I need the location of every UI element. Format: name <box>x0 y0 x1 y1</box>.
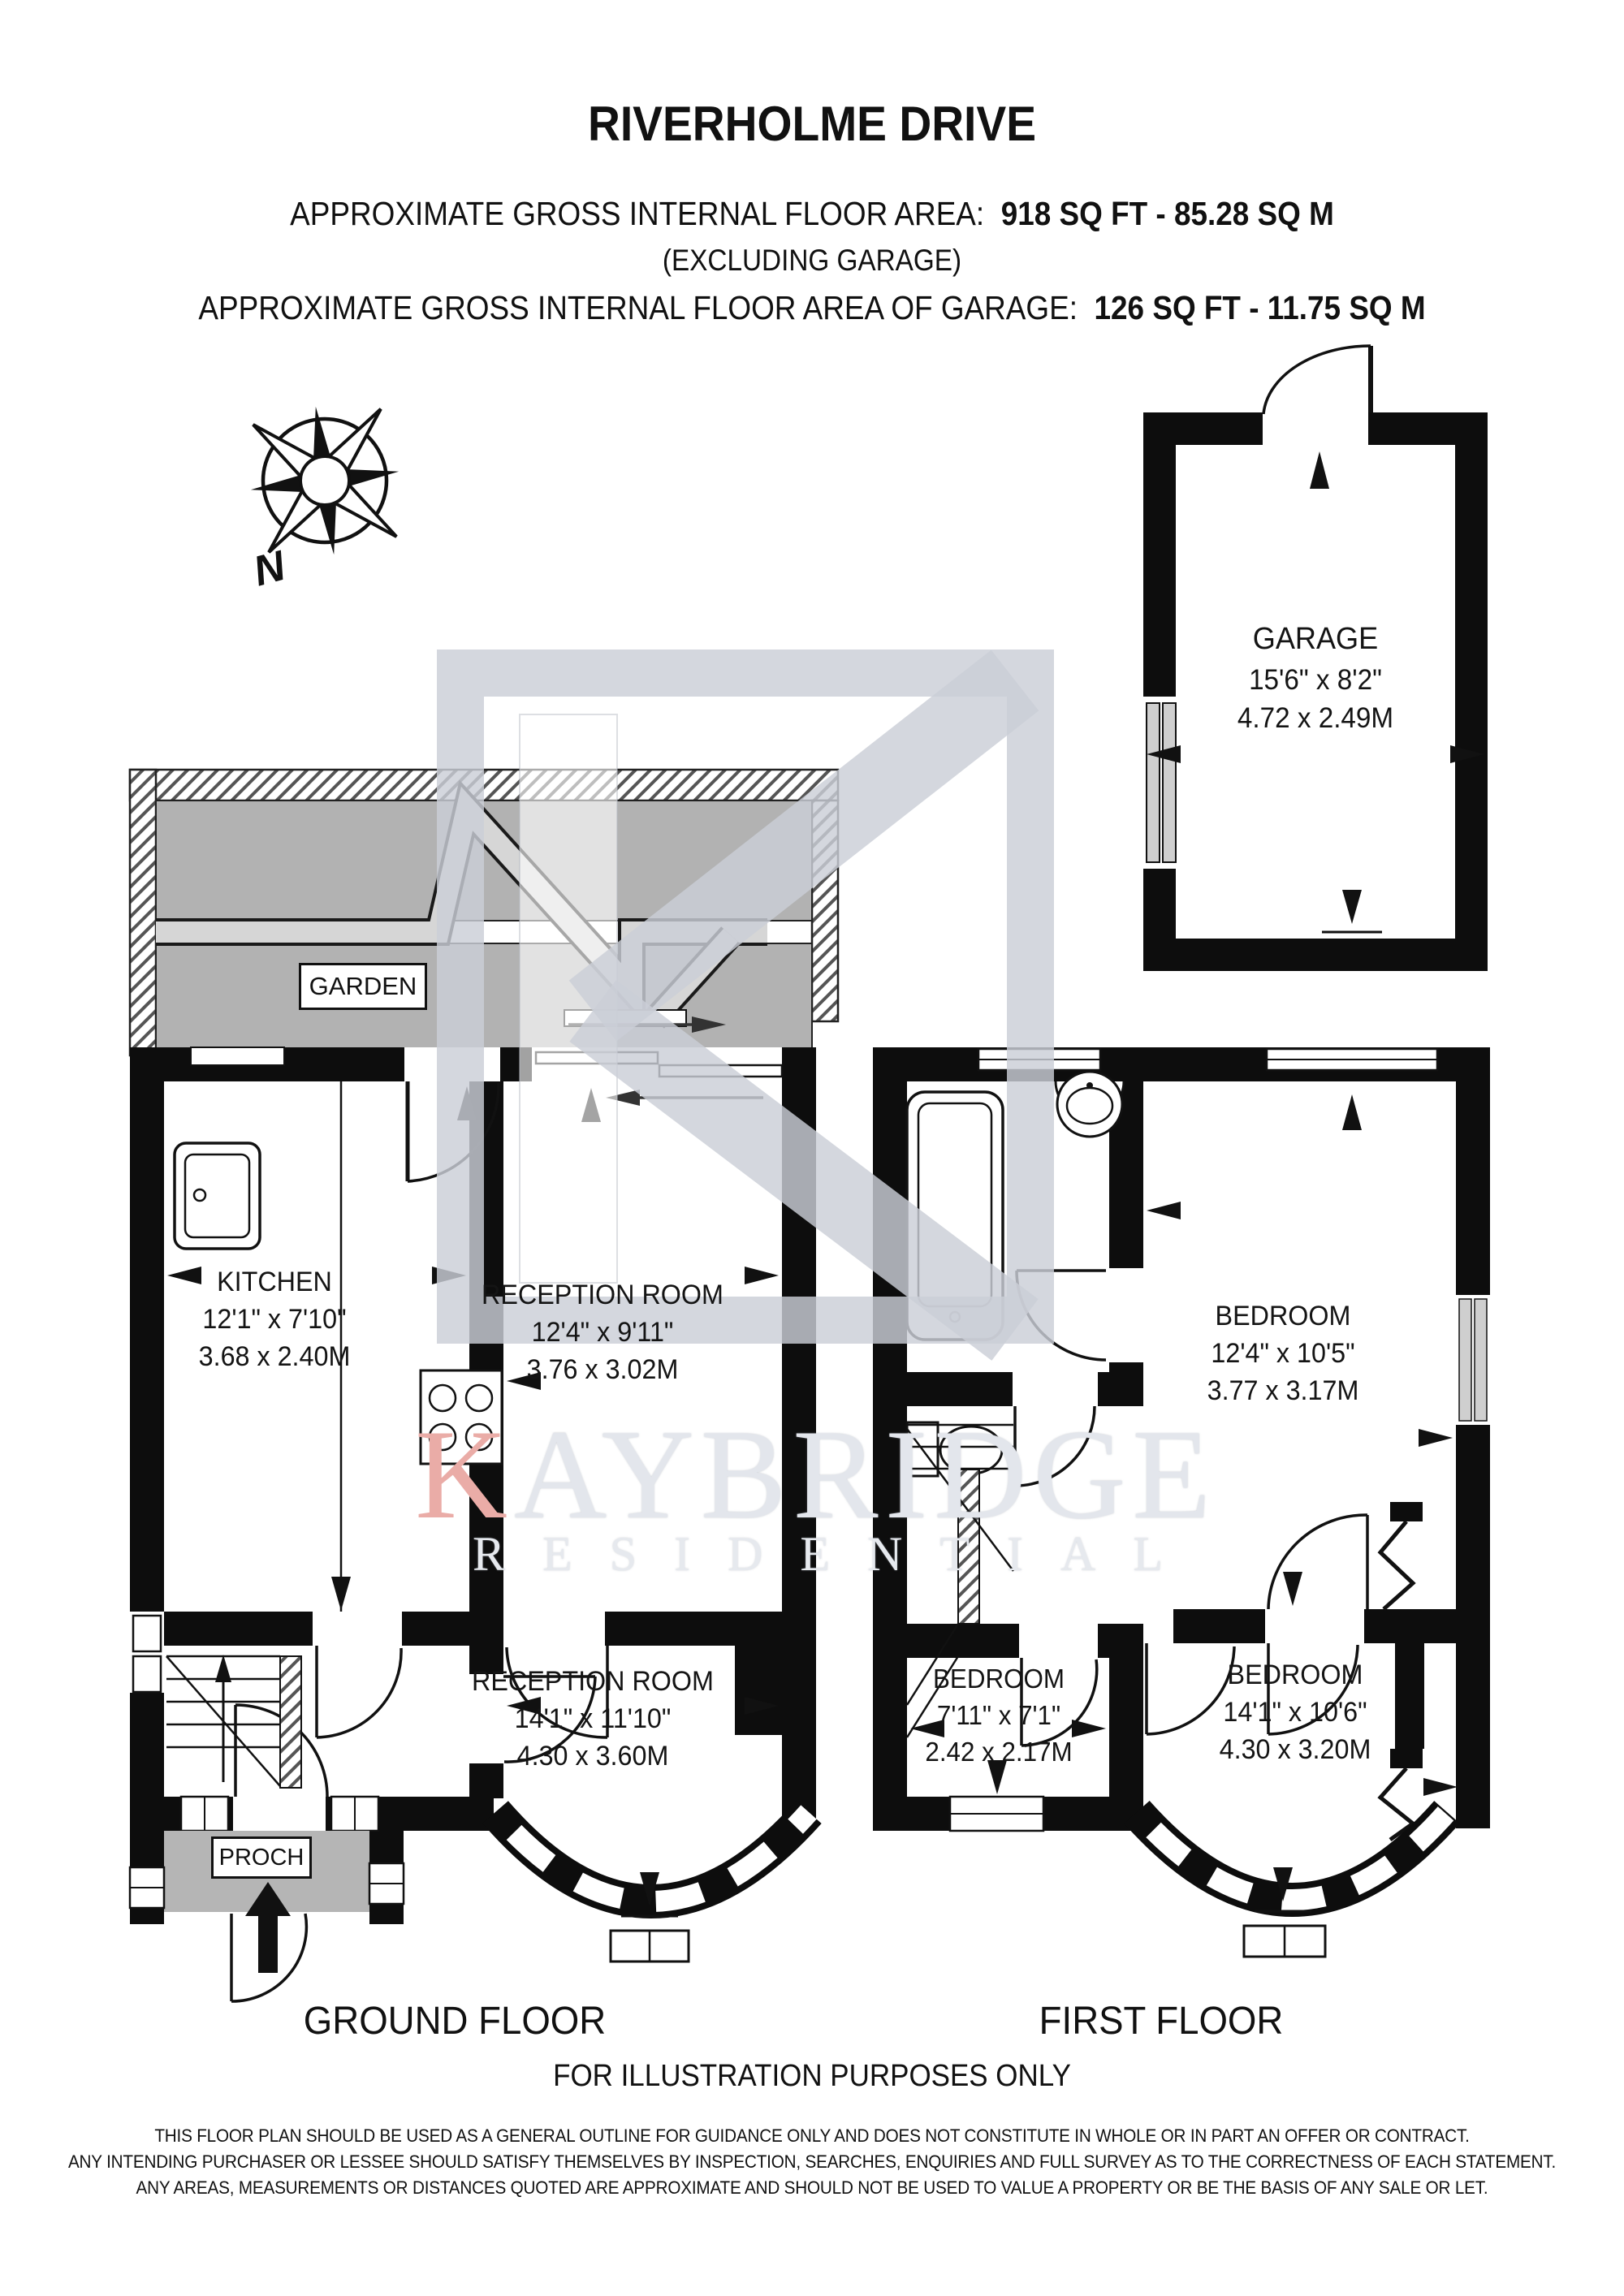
garage-dims-imperial: 15'6" x 8'2" <box>1237 661 1393 700</box>
bedroom-rear-dims-imperial: 12'4" x 10'5" <box>1207 1335 1359 1372</box>
page-title: RIVERHOLME DRIVE <box>588 96 1036 152</box>
garden-label-text: GARDEN <box>309 972 417 1001</box>
compass-rose-icon: N <box>177 333 473 629</box>
reception-bottom-dims-metric: 4.30 x 3.60M <box>472 1737 714 1775</box>
room-label-reception-bottom: RECEPTION ROOM 14'1" x 11'10" 4.30 x 3.6… <box>472 1663 714 1776</box>
bedroom-front-dims-metric: 4.30 x 3.20M <box>1220 1731 1371 1768</box>
room-label-bedroom-rear: BEDROOM 12'4" x 10'5" 3.77 x 3.17M <box>1207 1297 1359 1410</box>
garage-area-label: APPROXIMATE GROSS INTERNAL FLOOR AREA OF… <box>198 289 1078 326</box>
bedroom-small-dims-imperial: 7'11" x 7'1" <box>925 1698 1072 1734</box>
disclaimer-line-3: ANY AREAS, MEASUREMENTS OR DISTANCES QUO… <box>136 2177 1488 2199</box>
floor-area-value: 918 SQ FT - 85.28 SQ M <box>1001 195 1334 232</box>
basin-icon <box>1056 1072 1124 1137</box>
kitchen-sink-icon <box>175 1143 260 1249</box>
garage-area-value: 126 SQ FT - 11.75 SQ M <box>1095 289 1426 326</box>
garage-dims-metric: 4.72 x 2.49M <box>1237 699 1393 738</box>
kitchen-dims-metric: 3.68 x 2.40M <box>199 1338 351 1375</box>
watermark-subtitle: RESIDENTIAL <box>473 1526 1200 1582</box>
bedroom-rear-name: BEDROOM <box>1207 1297 1359 1335</box>
caption-first-floor: FIRST FLOOR <box>1039 1999 1284 2044</box>
bedroom-front-dims-imperial: 14'1" x 10'6" <box>1220 1694 1371 1731</box>
room-label-kitchen: KITCHEN 12'1" x 7'10" 3.68 x 2.40M <box>199 1263 351 1376</box>
bedroom-small-dims-metric: 2.42 x 2.17M <box>925 1734 1072 1771</box>
floorplan-graphics: N <box>0 0 1624 2296</box>
room-label-bedroom-small: BEDROOM 7'11" x 7'1" 2.42 x 2.17M <box>925 1661 1072 1771</box>
garden-label: GARDEN <box>299 963 427 1010</box>
illustration-note: FOR ILLUSTRATION PURPOSES ONLY <box>553 2059 1071 2094</box>
reception-top-dims-imperial: 12'4" x 9'11" <box>482 1314 723 1351</box>
kitchen-dims-imperial: 12'1" x 7'10" <box>199 1301 351 1338</box>
room-label-reception-top: RECEPTION ROOM 12'4" x 9'11" 3.76 x 3.02… <box>482 1276 723 1389</box>
stairs-ground-icon <box>166 1655 301 1788</box>
excluding-note: (EXCLUDING GARAGE) <box>663 244 961 278</box>
floor-area-line: APPROXIMATE GROSS INTERNAL FLOOR AREA: 9… <box>290 195 1334 233</box>
caption-ground-floor: GROUND FLOOR <box>304 1999 606 2044</box>
disclaimer-line-2: ANY INTENDING PURCHASER OR LESSEE SHOULD… <box>68 2151 1556 2173</box>
garage-name: GARAGE <box>1237 619 1393 661</box>
watermark-brand-initial: K <box>415 1404 514 1546</box>
bedroom-front-name: BEDROOM <box>1220 1656 1371 1694</box>
reception-top-name: RECEPTION ROOM <box>482 1276 723 1314</box>
disclaimer-line-1: THIS FLOOR PLAN SHOULD BE USED AS A GENE… <box>154 2126 1469 2147</box>
kitchen-name: KITCHEN <box>199 1263 351 1301</box>
reception-top-dims-metric: 3.76 x 3.02M <box>482 1351 723 1388</box>
north-label: N <box>248 542 292 595</box>
bedroom-rear-dims-metric: 3.77 x 3.17M <box>1207 1372 1359 1409</box>
reception-bottom-name: RECEPTION ROOM <box>472 1663 714 1700</box>
watermark-brand-rest: AYBRIDGE <box>514 1404 1217 1546</box>
room-label-garage: GARAGE 15'6" x 8'2" 4.72 x 2.49M <box>1237 619 1393 738</box>
garage-area-line: APPROXIMATE GROSS INTERNAL FLOOR AREA OF… <box>198 289 1425 327</box>
reception-bottom-dims-imperial: 14'1" x 11'10" <box>472 1700 714 1737</box>
floorplan-page: N <box>0 0 1624 2296</box>
bay-window-ground <box>495 1812 809 1962</box>
porch-label: PROCH <box>211 1836 312 1879</box>
floor-area-label: APPROXIMATE GROSS INTERNAL FLOOR AREA: <box>290 195 984 232</box>
porch-label-text: PROCH <box>219 1845 304 1871</box>
room-label-bedroom-front: BEDROOM 14'1" x 10'6" 4.30 x 3.20M <box>1220 1656 1371 1769</box>
bedroom-small-name: BEDROOM <box>925 1661 1072 1698</box>
